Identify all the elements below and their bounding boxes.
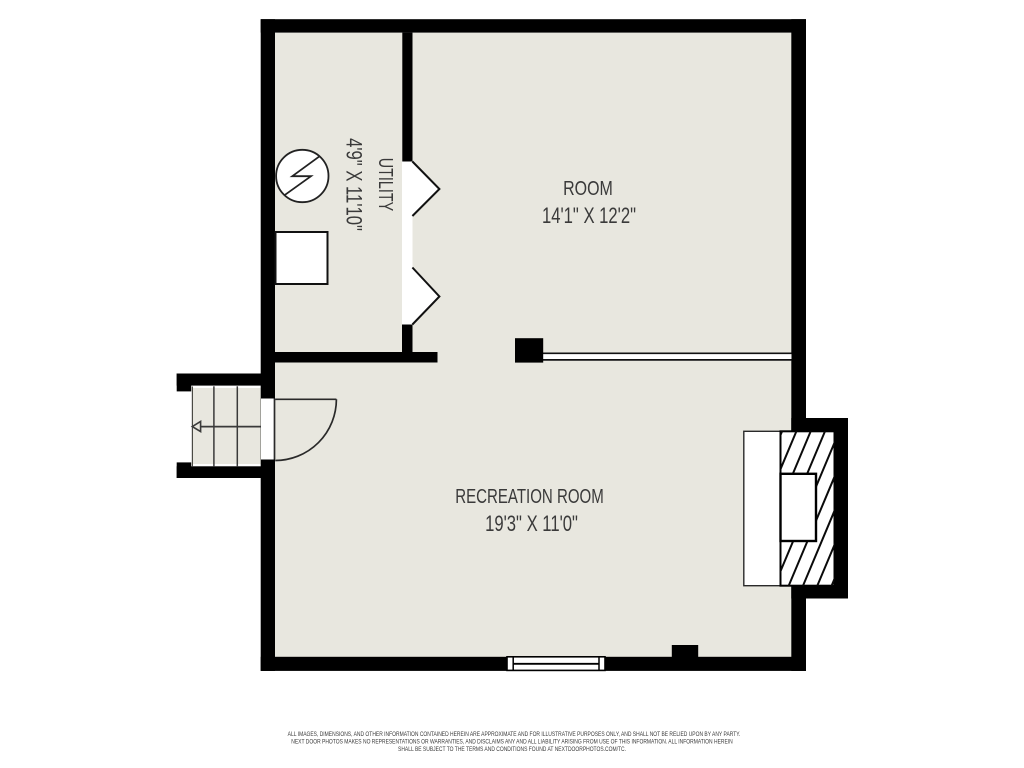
svg-text:ALL IMAGES, DIMENSIONS, AND OT: ALL IMAGES, DIMENSIONS, AND OTHER INFORM… (288, 731, 741, 738)
svg-text:14'1" X 12'2": 14'1" X 12'2" (542, 204, 636, 229)
svg-text:ROOM: ROOM (563, 176, 613, 199)
svg-text:19'3" X 11'0": 19'3" X 11'0" (485, 512, 578, 537)
svg-text:NEXT DOOR PHOTOS MAKES NO REPR: NEXT DOOR PHOTOS MAKES NO REPRESENTATION… (291, 739, 732, 746)
svg-text:RECREATION ROOM: RECREATION ROOM (455, 485, 604, 508)
svg-text:4'9" X 11'10": 4'9" X 11'10" (341, 138, 366, 231)
svg-text:SHALL BE SUBJECT TO THE TERMS: SHALL BE SUBJECT TO THE TERMS AND CONDIT… (398, 746, 626, 753)
svg-text:UTILITY: UTILITY (374, 158, 397, 212)
